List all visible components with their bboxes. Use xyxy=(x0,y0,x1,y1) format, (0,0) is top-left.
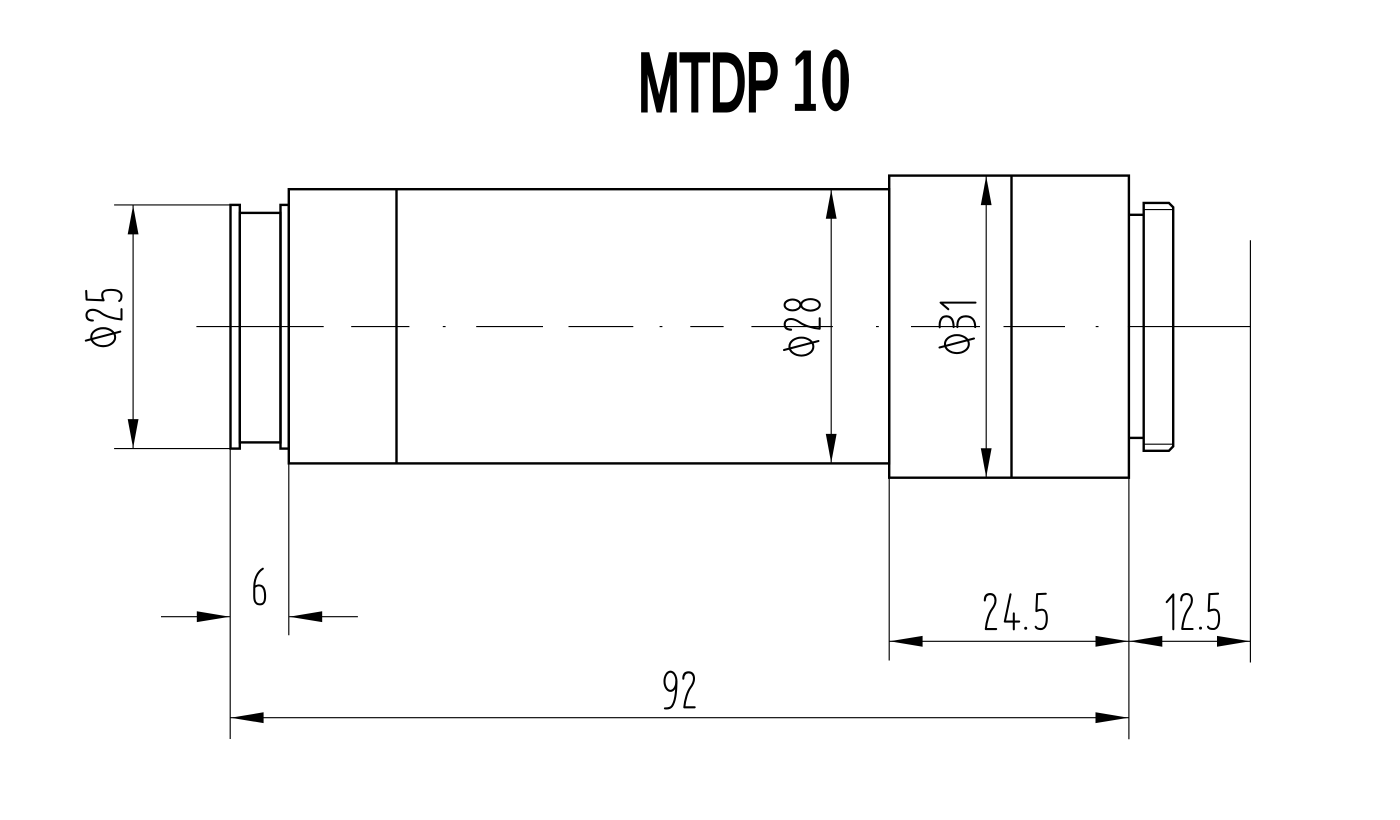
svg-text:MTDP: MTDP xyxy=(638,37,779,128)
